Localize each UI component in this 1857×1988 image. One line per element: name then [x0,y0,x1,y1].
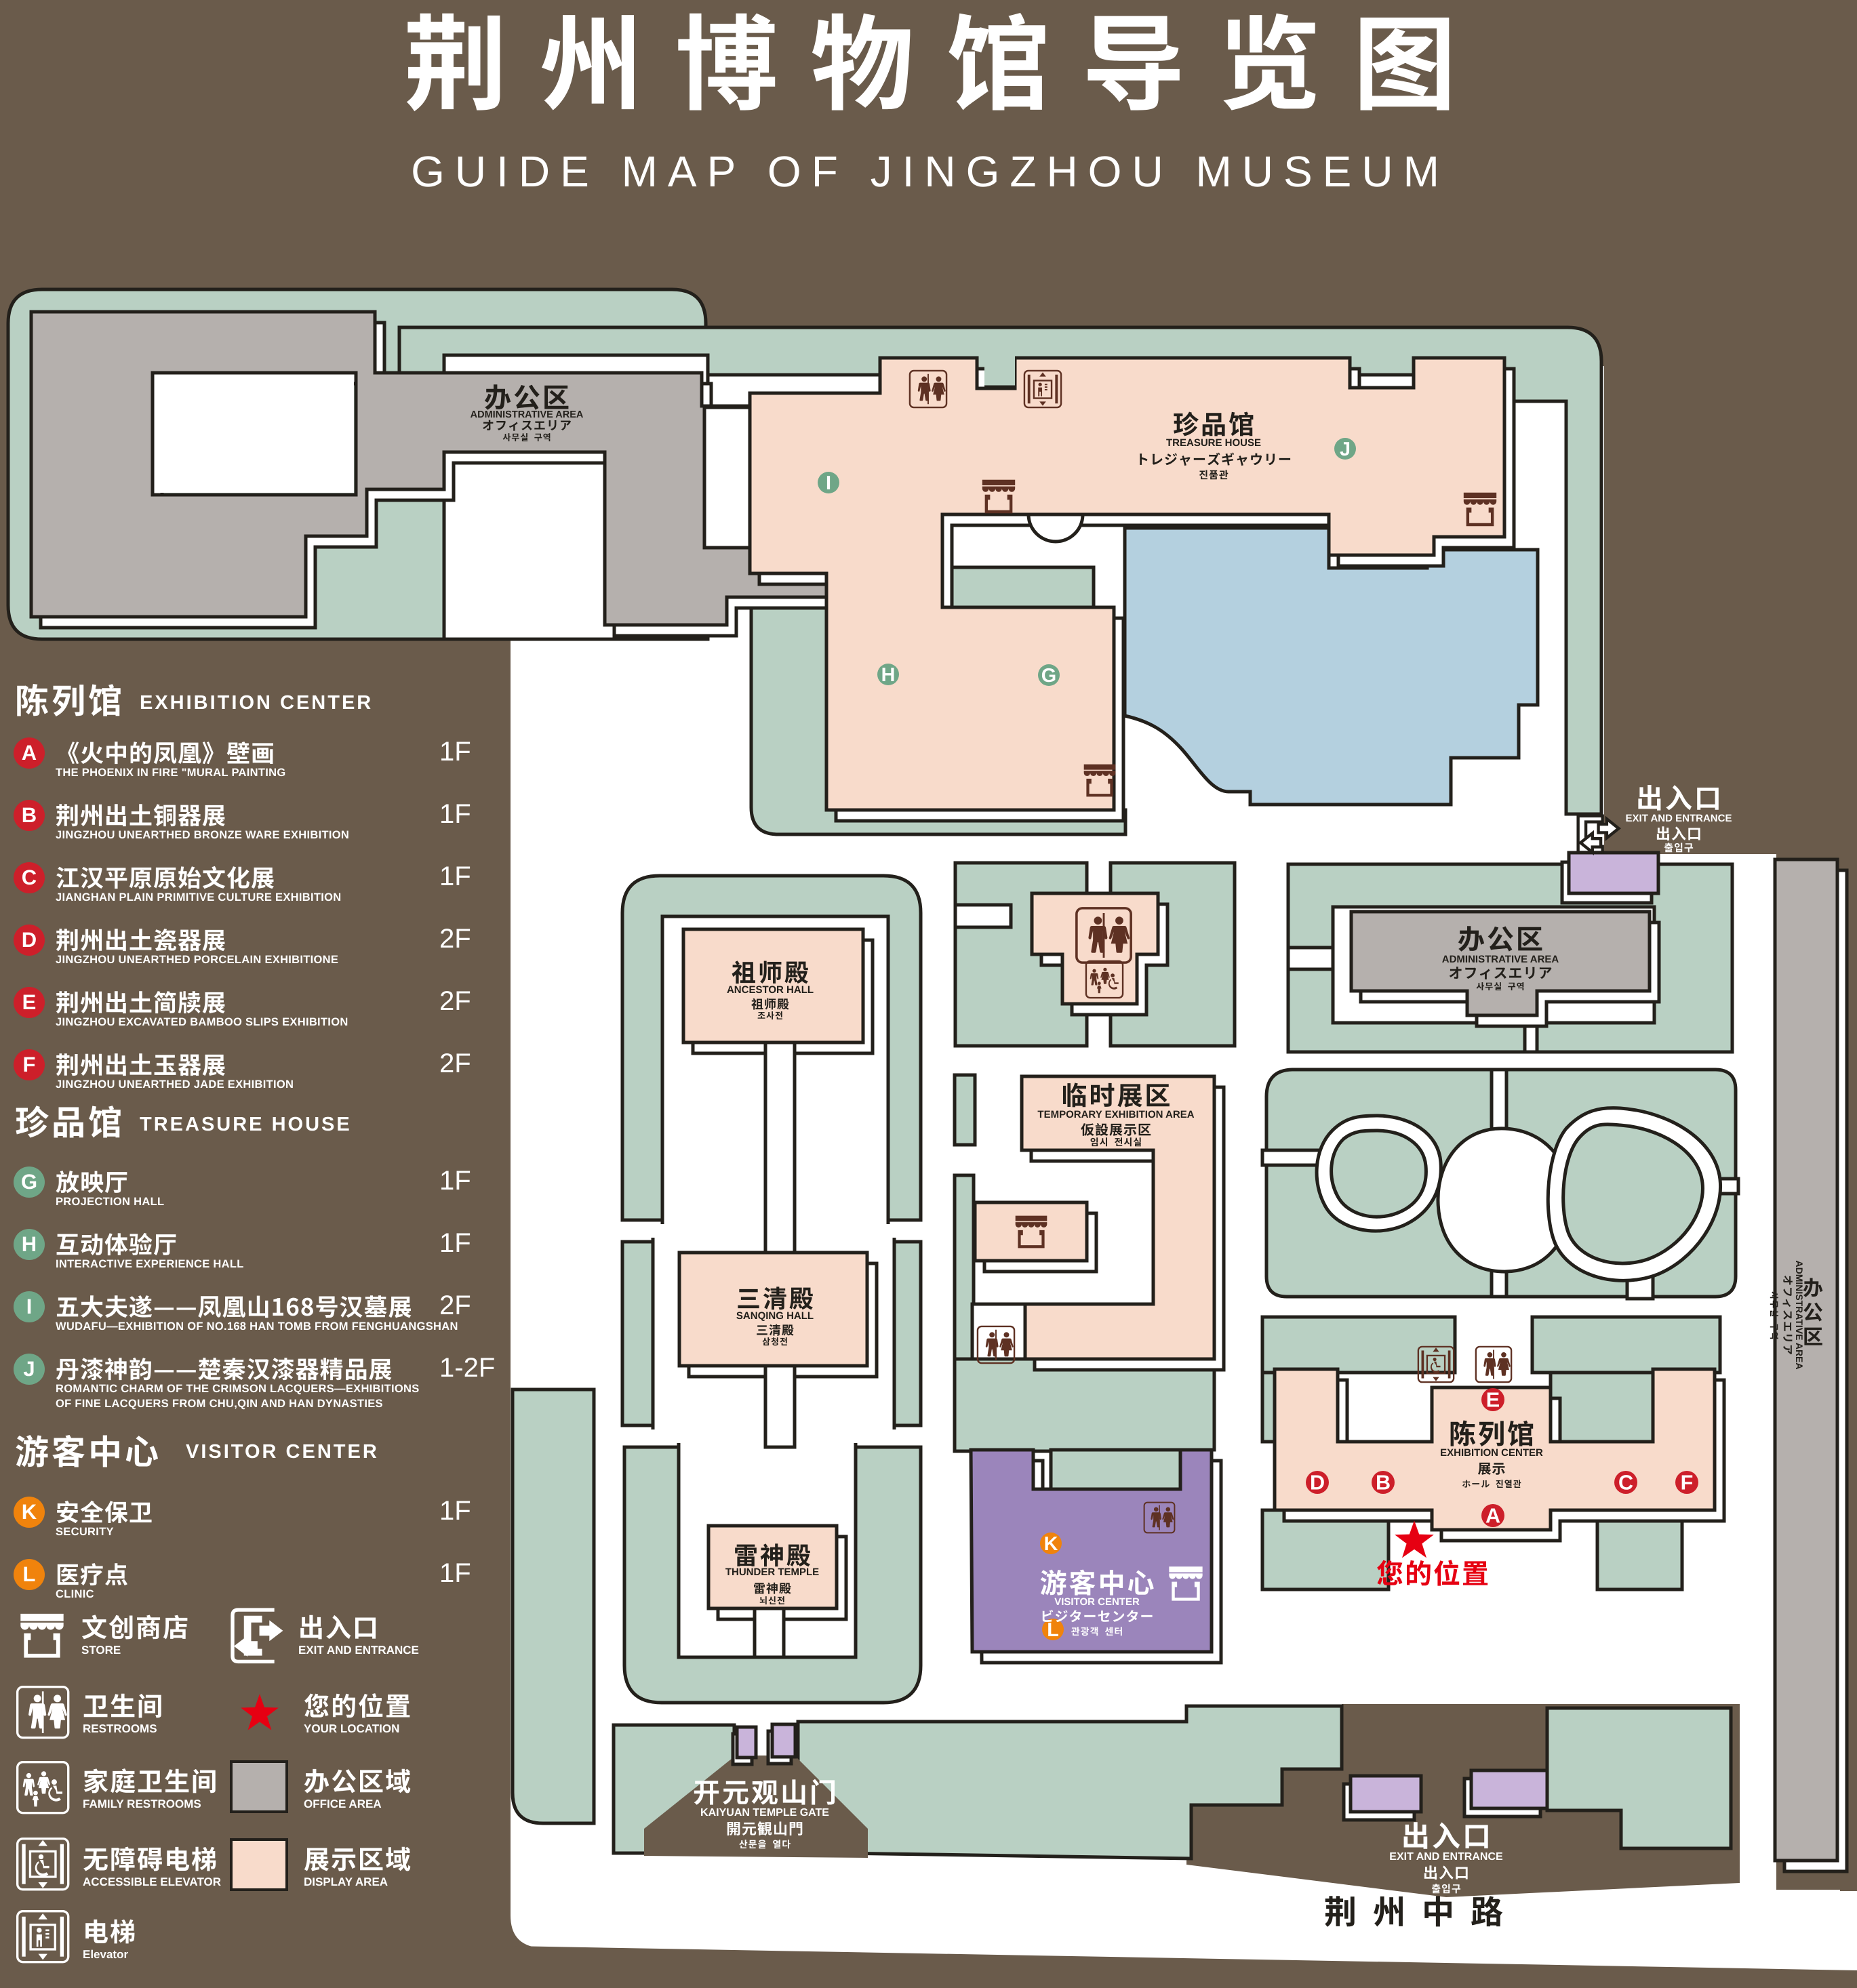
svg-text:F: F [23,1053,36,1076]
svg-text:C: C [22,866,37,889]
svg-text:1F: 1F [439,1166,471,1196]
svg-text:THUNDER TEMPLE: THUNDER TEMPLE [725,1566,819,1578]
svg-text:D: D [1310,1472,1325,1495]
svg-text:C: C [1618,1472,1633,1495]
svg-text:VISITOR CENTER: VISITOR CENTER [1054,1596,1140,1608]
svg-text:H: H [22,1232,37,1256]
svg-text:I: I [826,472,831,494]
svg-text:J: J [23,1357,35,1381]
svg-text:OFFICE AREA: OFFICE AREA [304,1798,382,1810]
svg-text:INTERACTIVE EXPERIENCE HALL: INTERACTIVE EXPERIENCE HALL [56,1258,244,1270]
svg-text:JINGZHOU EXCAVATED BAMBOO SLIP: JINGZHOU EXCAVATED BAMBOO SLIPS EXHIBITI… [56,1016,348,1028]
svg-text:STORE: STORE [81,1644,121,1657]
svg-text:EXIT AND ENTRANCE: EXIT AND ENTRANCE [298,1644,419,1657]
svg-text:TEMPORARY EXHIBITION AREA: TEMPORARY EXHIBITION AREA [1037,1109,1194,1120]
svg-text:1F: 1F [439,1558,471,1588]
svg-text:A: A [1485,1505,1500,1528]
svg-text:K: K [22,1500,37,1524]
svg-text:RESTROOMS: RESTROOMS [83,1722,157,1735]
svg-text:JINGZHOU UNEARTHED JADE EXHIBI: JINGZHOU UNEARTHED JADE EXHIBITION [56,1078,294,1091]
svg-text:1F: 1F [439,1228,471,1258]
svg-text:ROMANTIC CHARM OF THE CRIMSON: ROMANTIC CHARM OF THE CRIMSON LACQUERS—E… [56,1383,420,1395]
svg-text:SECURITY: SECURITY [56,1526,114,1538]
svg-text:ADMINISTRATIVE AREA: ADMINISTRATIVE AREA [471,409,584,420]
svg-text:I: I [26,1295,33,1318]
svg-text:1F: 1F [439,1496,471,1526]
svg-text:2F: 2F [439,986,471,1016]
svg-text:PROJECTION HALL: PROJECTION HALL [56,1196,164,1208]
svg-text:KAIYUAN TEMPLE GATE: KAIYUAN TEMPLE GATE [700,1807,829,1819]
svg-text:EXHIBITION CENTER: EXHIBITION CENTER [140,692,373,714]
svg-text:GUIDE MAP OF JINGZHOU MUSEUM: GUIDE MAP OF JINGZHOU MUSEUM [411,147,1450,196]
svg-text:ACCESSIBLE ELEVATOR: ACCESSIBLE ELEVATOR [83,1875,221,1888]
svg-text:1F: 1F [439,799,471,829]
svg-text:CLINIC: CLINIC [56,1588,94,1600]
svg-text:ADMINISTRATIVE AREA: ADMINISTRATIVE AREA [1794,1261,1805,1370]
svg-text:SANQING HALL: SANQING HALL [736,1310,814,1322]
svg-text:H: H [881,664,896,686]
svg-text:THE PHOENIX IN FIRE "MURAL PAI: THE PHOENIX IN FIRE "MURAL PAINTING [56,767,285,779]
svg-text:A: A [22,741,37,765]
svg-text:E: E [22,990,37,1014]
svg-text:EXIT AND ENTRANCE: EXIT AND ENTRANCE [1626,813,1732,824]
svg-text:Elevator: Elevator [83,1948,128,1961]
svg-text:JIANGHAN PLAIN PRIMITIVE CULTU: JIANGHAN PLAIN PRIMITIVE CULTURE EXHIBIT… [56,891,341,904]
svg-text:1F: 1F [439,861,471,891]
svg-text:OF FINE LACQUERS FROM CHU,QIN: OF FINE LACQUERS FROM CHU,QIN AND HAN DY… [56,1398,383,1410]
svg-text:J: J [1340,439,1351,460]
svg-text:K: K [1044,1533,1058,1555]
svg-text:G: G [1041,665,1056,687]
svg-text:ADMINISTRATIVE AREA: ADMINISTRATIVE AREA [1442,954,1559,965]
svg-text:L: L [23,1562,36,1586]
svg-text:2F: 2F [439,924,471,954]
svg-text:L: L [1047,1619,1059,1641]
svg-text:JINGZHOU UNEARTHED PORCELAIN E: JINGZHOU UNEARTHED PORCELAIN EXHIBITIONE [56,954,338,966]
svg-text:1-2F: 1-2F [439,1353,495,1383]
svg-text:2F: 2F [439,1291,471,1320]
svg-text:E: E [1486,1389,1500,1412]
svg-text:2F: 2F [439,1049,471,1078]
svg-text:VISITOR CENTER: VISITOR CENTER [186,1441,379,1463]
svg-text:1F: 1F [439,737,471,767]
svg-text:EXHIBITION CENTER: EXHIBITION CENTER [1440,1447,1543,1459]
svg-text:FAMILY RESTROOMS: FAMILY RESTROOMS [83,1798,201,1810]
svg-text:DISPLAY AREA: DISPLAY AREA [304,1875,388,1888]
svg-text:B: B [1376,1472,1391,1495]
svg-text:JINGZHOU UNEARTHED BRONZE WARE: JINGZHOU UNEARTHED BRONZE WARE EXHIBITIO… [56,829,349,841]
svg-text:B: B [22,803,37,827]
svg-text:YOUR LOCATION: YOUR LOCATION [304,1722,399,1735]
svg-text:TREASURE HOUSE: TREASURE HOUSE [140,1114,352,1135]
svg-text:TREASURE HOUSE: TREASURE HOUSE [1166,437,1261,449]
svg-text:F: F [1681,1472,1694,1495]
svg-text:ANCESTOR HALL: ANCESTOR HALL [727,984,814,996]
svg-text:D: D [22,928,37,952]
svg-text:G: G [21,1170,37,1194]
svg-text:WUDAFU—EXHIBITION OF NO.168 HA: WUDAFU—EXHIBITION OF NO.168 HAN TOMB FRO… [56,1320,458,1333]
svg-text:EXIT AND ENTRANCE: EXIT AND ENTRANCE [1389,1851,1503,1863]
